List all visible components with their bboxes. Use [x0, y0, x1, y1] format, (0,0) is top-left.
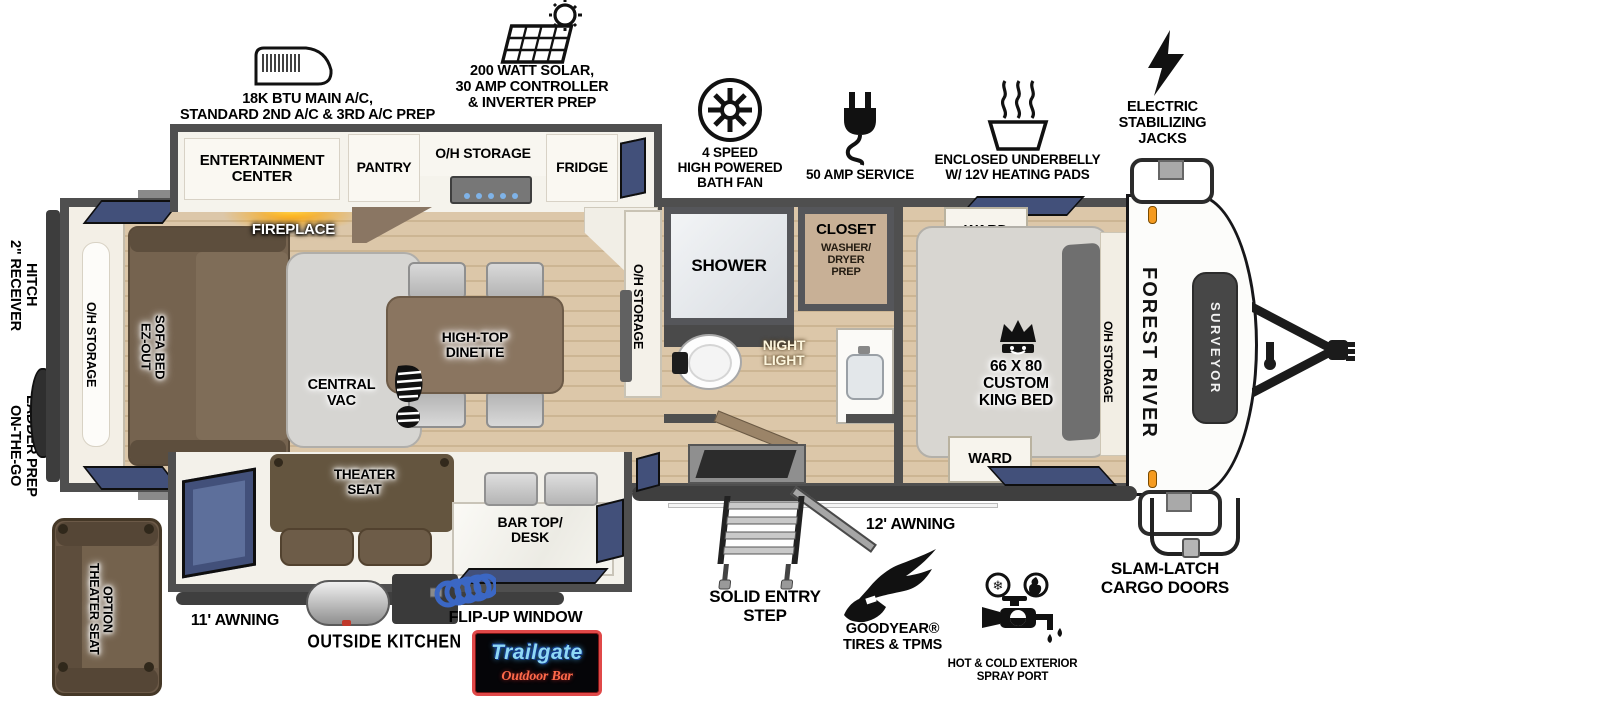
closet-subtitle: WASHER/ DRYER PREP [805, 242, 887, 278]
option-sofa-stud [144, 662, 154, 672]
central-vac-label: CENTRAL VAC [294, 378, 389, 410]
option-sofa-back [56, 546, 82, 668]
kitchen-oh-storage-label: O/H STORAGE [435, 146, 531, 161]
option-sofa-stud [144, 524, 154, 534]
stabilizer-jack-top-pad [1158, 160, 1184, 180]
surveyor-label: SURVEYOR [1208, 278, 1222, 418]
stab-jacks-callout-label: ELECTRIC STABILIZING JACKS [1110, 100, 1215, 148]
bar-top-desk-label: BAR TOP/ DESK [470, 515, 590, 546]
awning-rail-right [632, 486, 1137, 501]
bath-fan-icon [696, 76, 764, 144]
bedroom-oh-storage-label: O/H STORAGE [1101, 296, 1127, 428]
shower: SHOWER [664, 207, 794, 325]
ac-unit-icon [250, 40, 334, 92]
floorplan-diagram: 18K BTU MAIN A/C, STANDARD 2ND A/C & 3RD… [0, 0, 1600, 714]
bedroom-wall [894, 207, 903, 483]
fridge: FRIDGE [546, 134, 618, 202]
theater-slide-window-right [596, 499, 624, 564]
step-ladder-icon [710, 492, 818, 590]
goodyear-label: GOODYEAR® TIRES & TPMS [835, 622, 950, 654]
king-bed-pillow [1062, 243, 1100, 442]
range-cooktop [450, 176, 532, 204]
pantry: PANTRY [348, 134, 420, 202]
bar-stool [484, 472, 538, 506]
theater-seat-label: THEATER SEAT [312, 468, 417, 498]
night-light-label: NIGHT LIGHT [740, 338, 828, 369]
bath-wall-stub [846, 414, 894, 423]
solar-panel-sun-icon [488, 0, 588, 66]
rear-oh-storage-label: O/H STORAGE [83, 252, 109, 438]
bath-faucet [858, 346, 870, 354]
theater-slide-window-left [182, 467, 256, 578]
kitchen-slide-window [620, 137, 646, 199]
outside-kitchen-label: OUTSIDE KITCHEN [292, 633, 477, 653]
ac-callout-label: 18K BTU MAIN A/C, STANDARD 2ND A/C & 3RD… [165, 92, 450, 124]
heated-pan-icon [982, 76, 1054, 152]
fireplace-label: FIREPLACE [236, 222, 351, 239]
solar-callout-label: 200 WATT SOLAR, 30 AMP CONTROLLER & INVE… [448, 64, 616, 112]
bath-wall-stub [664, 414, 716, 423]
closet-title: CLOSET [805, 222, 887, 239]
theater-seat-cushion [358, 528, 432, 566]
underbelly-callout-label: ENCLOSED UNDERBELLY W/ 12V HEATING PADS [930, 153, 1105, 183]
theater-seat-option-label: THEATER SEAT OPTION [86, 556, 130, 662]
dinette-chair [486, 262, 544, 300]
bath-fan-callout-label: 4 SPEED HIGH POWERED BATH FAN [660, 146, 800, 191]
theater-seat-cushion [280, 528, 354, 566]
awning-left-label: 11' AWNING [185, 612, 285, 630]
theater-seat-stud [274, 458, 283, 467]
trailgate-title: Trailgate [475, 641, 599, 664]
lightning-bolt-icon [1140, 28, 1192, 98]
griddle-knob [342, 620, 351, 626]
sofa-bed-label: EZ-OUT SOFA BED [138, 292, 186, 402]
entry-step-label: SOLID ENTRY STEP [690, 588, 840, 625]
toilet-seat [688, 344, 732, 382]
marker-light-bottom [1148, 470, 1157, 488]
option-sofa-stud [58, 662, 68, 672]
rear-bumper [46, 210, 60, 482]
trailgate-subtitle: Outdoor Bar [475, 669, 599, 684]
king-bed-label: 66 X 80 CUSTOM KING BED [946, 358, 1086, 409]
svg-text:❄: ❄ [993, 579, 1004, 594]
bath-sink [846, 354, 884, 400]
dinette-label: HIGH-TOP DINETTE [442, 330, 509, 361]
awning-right-label: 12' AWNING [858, 516, 963, 534]
sofa-cushion [196, 252, 288, 440]
dinette-chair [486, 390, 544, 428]
entry-mat [695, 450, 796, 478]
spray-port-label: HOT & COLD EXTERIOR SPRAY PORT [945, 658, 1080, 683]
option-sofa-stud [58, 524, 68, 534]
amp-service-callout-label: 50 AMP SERVICE [795, 168, 925, 183]
fridge-label: FRIDGE [556, 160, 608, 175]
option-sofa-arm-bottom [56, 668, 158, 692]
winged-foot-icon [842, 545, 942, 623]
pantry-label: PANTRY [357, 160, 412, 175]
kitchen-oh-storage: O/H STORAGE [420, 132, 546, 176]
trailgate-logo: Trailgate Outdoor Bar [472, 630, 602, 696]
toilet-hinge [672, 352, 688, 374]
option-sofa-arm-top [56, 522, 158, 546]
entertainment-center-label: ENTERTAINMENT CENTER [200, 153, 325, 186]
entry-side-window [636, 452, 660, 492]
surveyor-badge: SURVEYOR [1192, 272, 1238, 424]
entertainment-center: ENTERTAINMENT CENTER [184, 138, 340, 200]
crown-icon [996, 316, 1040, 356]
receiver-hitch-label: 2" RECEIVER HITCH [6, 226, 50, 344]
shower-label: SHOWER [691, 257, 766, 276]
a-frame-hitch-icon [1252, 298, 1356, 402]
theater-seat-stud [440, 458, 449, 467]
bar-stool [544, 472, 598, 506]
cargo-door-latch [1182, 538, 1200, 558]
boot-print-icon [390, 364, 426, 430]
marker-light-top [1148, 206, 1157, 224]
mid-oh-storage-label: O/H STORAGE [630, 238, 656, 376]
power-plug-icon [836, 90, 884, 166]
closet: CLOSET WASHER/ DRYER PREP [798, 207, 894, 311]
flip-up-window-label: FLIP-UP WINDOW [438, 609, 593, 627]
dinette-chair [408, 262, 466, 300]
bedroom-window-bottom [987, 466, 1117, 486]
cargo-doors-label: SLAM-LATCH CARGO DOORS [1090, 560, 1240, 597]
faucet-hot-cold-icon: ❄ [968, 572, 1072, 654]
forest-river-logo: FOREST RIVER [1138, 238, 1172, 468]
